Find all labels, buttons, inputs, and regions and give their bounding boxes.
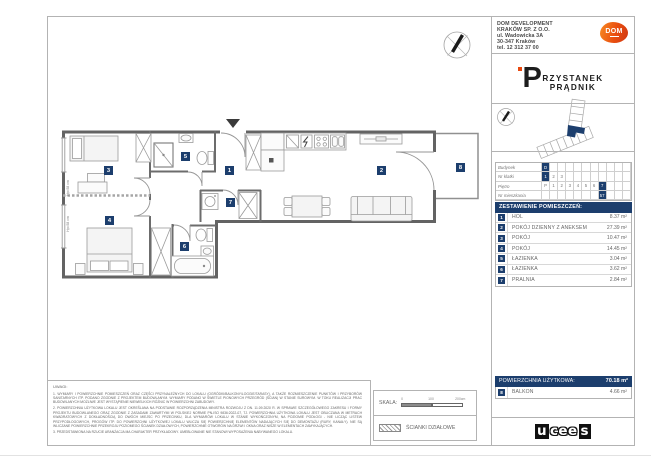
room-row: 3 POKÓJ 10.47 m² [496,233,631,243]
staircase-value: 1 [542,172,550,181]
scale-bar-filled [401,403,432,407]
entrance-marker-icon [226,119,240,128]
notes-section: UWAGI: 1. WYMIARY I POWIERZCHNIE POMIESZ… [47,380,371,446]
dom-logo-text: DOM [605,28,622,35]
logo-orange-square [518,67,522,71]
room-badge-hol: 1 [225,166,234,175]
usable-area-value: 70.18 m² [606,378,632,384]
unit-table-label: Piętro [496,182,542,191]
room-number-badge: 1 [498,214,505,221]
room-number-badge: 2 [498,224,505,231]
room-schedule: ZESTAWIENIE POMIESZCZEŃ: 1 HOL 8.37 m² 2… [495,202,632,287]
unit-info-table: Budynek D Nr klatki 1 2 3 Piętro P 1 2 3… [495,162,632,201]
dom-development-logo: DOM [600,22,628,43]
logo-wordmark: RZYSTANEK PRĄDNIK [542,74,603,92]
room-area: 8.37 m² [610,214,627,220]
unit-table-label: Nr mieszkania [496,191,542,200]
room-number-badge: 3 [498,235,505,242]
room-row: 6 ŁAZIENKA 3.62 m² [496,265,631,275]
room-list: 1 HOL 8.37 m² 2 POKÓJ DZIENNY Z ANEKSEM … [495,213,632,287]
unit-table-label: Budynek [496,163,542,172]
room-area: 14.45 m² [607,246,627,252]
przystanek-pradnik-logo: P RZYSTANEK PRĄDNIK [523,66,604,92]
room-name: ŁAZIENKA [512,266,538,272]
room-area: 3.04 m² [610,256,627,262]
logo-line2: PRĄDNIK [542,83,603,92]
company-phone: tel. 12 312 37 00 [497,45,553,51]
note-3: 3. PRZEDSTAWIONA NA RZUCIE ARANŻACJA MA … [53,430,362,434]
balcony-row: 8 BALKON 4.66 m² [495,387,632,399]
floorplan-sheet: { "company": { "line1": "DOM DEVELOPMENT… [0,0,651,460]
scale-tick-0: 0 [401,397,403,401]
note-1: 1. WYMIARY I POWIERZCHNIE POMIESZCZEŃ OR… [53,392,362,405]
room-name: BALKON [512,389,534,395]
scale-label: SKALA: [379,400,397,406]
room-badge-bedroom1: 3 [104,166,113,175]
room-name: HOL [512,214,523,220]
ucees-logo-section: u cee s [492,417,634,445]
room-schedule-header: ZESTAWIENIE POMIESZCZEŃ: [495,202,632,213]
room-area: 10.47 m² [607,235,627,241]
room-number-badge: 6 [498,266,505,273]
project-logo-section: P RZYSTANEK PRĄDNIK [492,54,634,104]
room-name: POKÓJ [512,246,530,252]
room-area: 4.66 m² [610,389,627,395]
ucees-logo-u: u [535,424,549,439]
room-badge-laundry: 7 [226,198,235,207]
ucees-logo: u cee s [535,424,591,439]
partition-hatch-swatch [379,424,401,432]
logo-letter-p: P [523,66,542,92]
scale-tick-200: 200cm [455,397,465,401]
scale-section: SKALA: 0 100 200cm [373,390,477,416]
company-name-line1: DOM DEVELOPMENT [497,21,553,27]
room-row: 4 POKÓJ 14.45 m² [496,244,631,254]
legend-section: ŚCIANKI DZIAŁOWE [373,416,477,441]
usable-area-label: POWIERZCHNIA UŻYTKOWA: [495,378,575,384]
usable-area-bar: POWIERZCHNIA UŻYTKOWA: 70.18 m² [495,376,632,387]
location-map-section [492,104,634,152]
room-badge-bath2: 6 [180,242,189,251]
scale-tick-100: 100 [428,397,434,401]
room-area: 2.84 m² [610,277,627,283]
room-number-badge: 8 [498,389,505,396]
room-number-badge: 7 [498,277,505,284]
scale-bar-empty [432,403,463,407]
floor-value: 7 [599,182,607,191]
room-area: 3.62 m² [610,266,627,272]
window-sill-label: Hp=58 cm [66,175,70,201]
notes-title: UWAGI: [53,384,362,389]
ucees-logo-s: s [579,424,591,439]
room-name: PRALNIA [512,277,535,283]
room-name: POKÓJ DZIENNY Z ANEKSEM [512,225,587,231]
developer-info-section: DOM DEVELOPMENT KRAKÓW SP. Z O.O. ul. Wa… [492,16,634,54]
ucees-logo-cee: cee [550,424,578,439]
page-edge-line [0,455,651,456]
room-name: POKÓJ [512,235,530,241]
building-value: D [542,163,550,172]
note-2: 2. POWIERZCHNIA UŻYTKOWA LOKALU JEST OKR… [53,406,362,428]
room-number-badge: 4 [498,245,505,252]
room-number-badge: 5 [498,255,505,262]
partition-legend-label: ŚCIANKI DZIAŁOWE [406,425,455,431]
scale-bar: 0 100 200cm [400,396,466,411]
room-row: 2 POKÓJ DZIENNY Z ANEKSEM 27.39 m² [496,223,631,233]
company-name-line2: KRAKÓW SP. Z O.O. [497,27,553,33]
room-name: ŁAZIENKA [512,256,538,262]
room-badge-bath1: 5 [181,152,190,161]
developer-address: DOM DEVELOPMENT KRAKÓW SP. Z O.O. ul. Wa… [492,16,553,53]
room-row: 7 PRALNIA 2.84 m² [496,275,631,285]
room-badge-bedroom2: 4 [105,216,114,225]
room-badge-living: 2 [377,166,386,175]
room-row: 1 HOL 8.37 m² [496,213,631,223]
apartment-number-value: 57 [599,191,607,200]
room-row: 5 ŁAZIENKA 3.04 m² [496,254,631,264]
room-area: 27.39 m² [607,225,627,231]
unit-table-label: Nr klatki [496,172,542,181]
logo-line1: RZYSTANEK [542,74,603,83]
dom-logo-underline [610,36,619,37]
room-badge-balcony: 8 [456,163,465,172]
window-sill-label: Hp=58 cm [66,211,70,237]
